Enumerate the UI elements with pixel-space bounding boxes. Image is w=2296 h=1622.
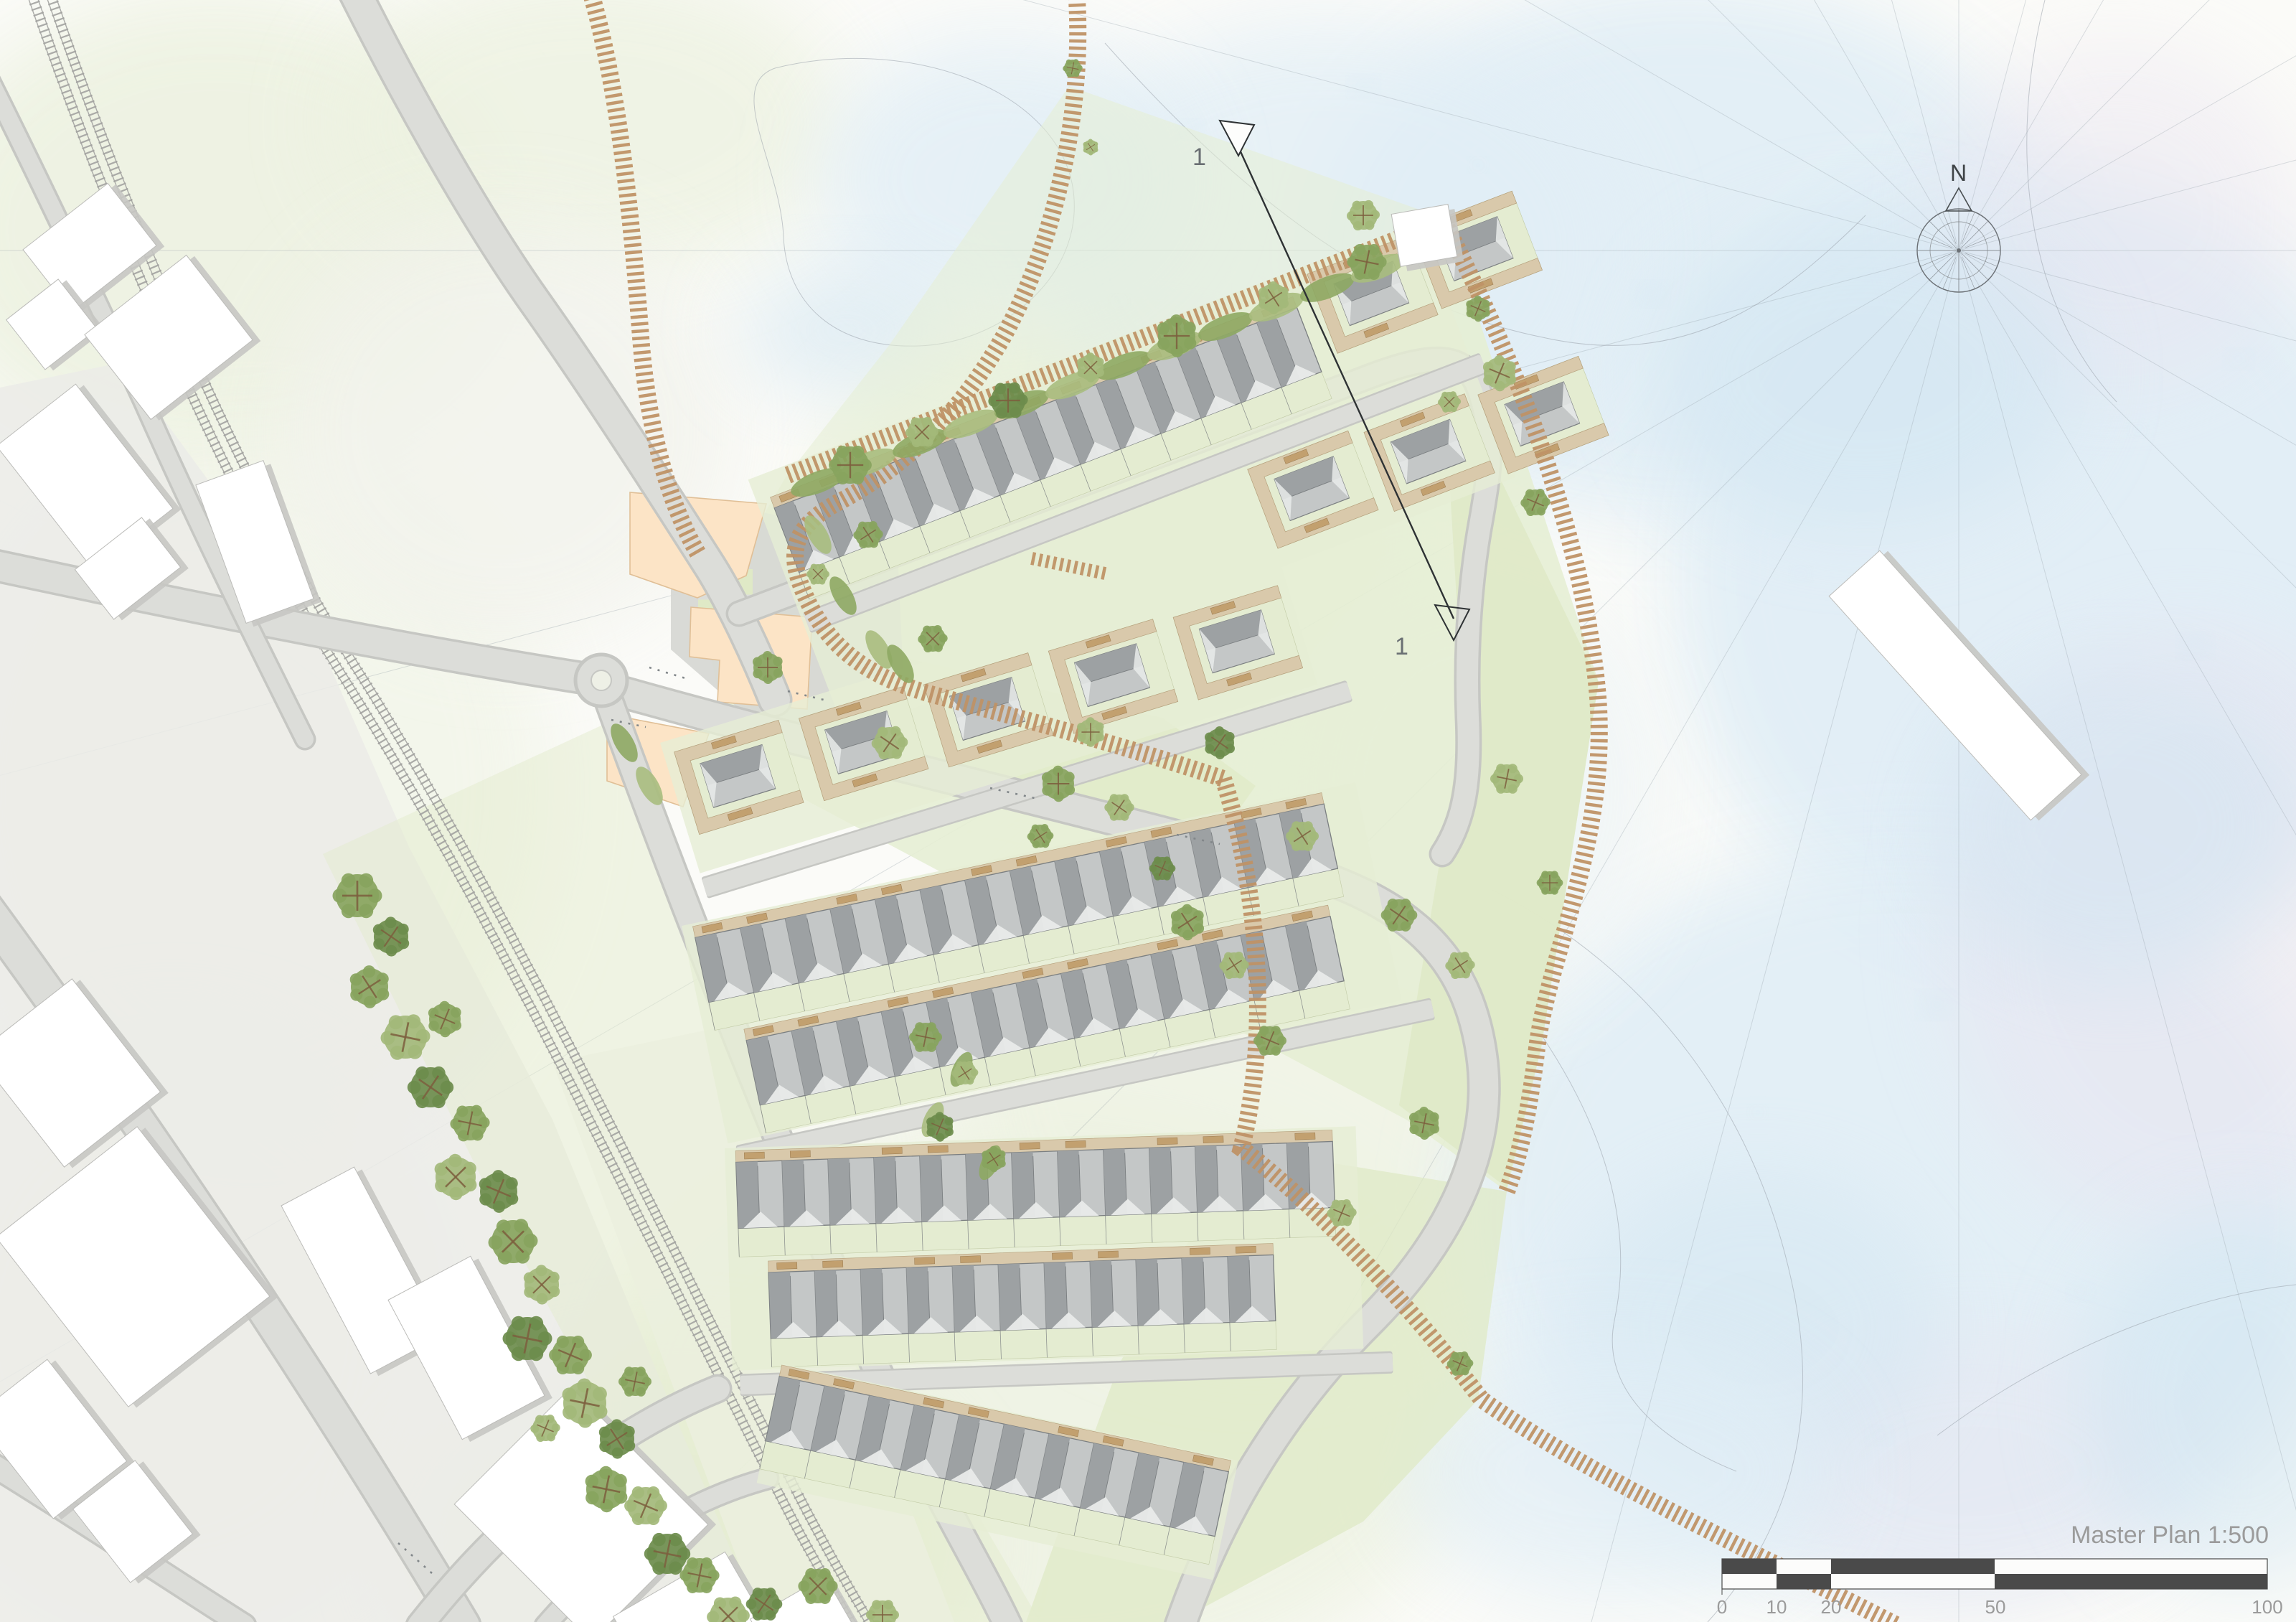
crown-lobe	[1409, 1125, 1418, 1134]
speckle	[1472, 161, 1485, 170]
crown-lobe	[746, 1599, 757, 1610]
crown-lobe	[1462, 970, 1470, 978]
crown-lobe	[891, 749, 902, 759]
crown-lobe	[869, 521, 878, 530]
crown-lobe	[599, 1427, 611, 1438]
crown-lobe	[772, 1599, 783, 1610]
crown-lobe	[1104, 803, 1113, 812]
crown-lobe	[1027, 833, 1035, 840]
crown-lobe	[498, 1250, 512, 1265]
crown-lobe	[552, 1423, 560, 1432]
crown-lobe	[1496, 784, 1505, 794]
speckle	[1639, 286, 1662, 302]
crown-lobe	[1096, 368, 1104, 377]
lower-housing-band	[725, 1125, 1393, 1397]
crown-lobe	[1542, 497, 1551, 506]
crown-lobe	[1496, 764, 1505, 773]
scale-segment	[1722, 1559, 1777, 1574]
crown-lobe	[1364, 200, 1373, 210]
crown-lobe	[798, 1580, 809, 1592]
crown-lobe	[687, 1582, 698, 1593]
bench	[1203, 1136, 1223, 1143]
crown-lobe	[644, 1547, 657, 1560]
scale-segment	[1777, 1574, 1831, 1589]
section-end-label: 1	[1395, 633, 1408, 660]
crown-lobe	[1096, 722, 1104, 731]
crown-lobe	[456, 1106, 468, 1117]
crown-lobe	[1467, 960, 1475, 969]
crown-lobe	[408, 1045, 422, 1059]
crown-lobe	[1442, 406, 1449, 413]
crown-lobe	[1259, 1026, 1269, 1035]
crown-lobe	[585, 1475, 598, 1488]
crown-lobe	[636, 1366, 646, 1376]
crown-lobe	[823, 571, 829, 577]
bench	[1020, 1143, 1040, 1150]
crown-lobe	[572, 1362, 584, 1374]
crown-lobe	[386, 945, 397, 957]
crown-lobe	[918, 635, 926, 644]
crown-lobe	[1182, 904, 1192, 915]
crown-lobe	[1032, 825, 1040, 833]
crown-lobe	[1467, 310, 1474, 318]
bench	[1236, 1246, 1256, 1253]
crown-lobe	[1042, 785, 1053, 796]
crown-lobe	[529, 1316, 543, 1331]
crown-lobe	[945, 1117, 954, 1125]
crown-lobe	[1088, 151, 1093, 156]
crown-lobe	[506, 1177, 518, 1189]
crown-lobe	[1365, 220, 1374, 230]
crown-lobe	[359, 873, 373, 888]
crown-lobe	[1452, 1368, 1460, 1376]
section-start-label: 1	[1192, 144, 1206, 171]
crown-lobe	[1096, 733, 1104, 741]
scale-segment	[1995, 1559, 2267, 1574]
crown-lobe	[377, 972, 389, 985]
crown-lobe	[1083, 142, 1088, 147]
crown-lobe	[1163, 873, 1171, 881]
crown-lobe	[773, 657, 782, 666]
crown-lobe	[464, 1178, 476, 1191]
crown-lobe	[909, 1032, 918, 1041]
crown-lobe	[729, 1596, 741, 1608]
crown-lobe	[435, 1163, 448, 1176]
crown-lobe	[957, 1077, 965, 1085]
crown-lobe	[870, 539, 878, 548]
crown-lobe	[852, 446, 864, 458]
crown-lobe	[1451, 970, 1459, 979]
crown-lobe	[1046, 832, 1054, 840]
crown-lobe	[1452, 1352, 1459, 1360]
speckle	[1794, 569, 1808, 579]
crown-lobe	[1171, 924, 1182, 934]
crown-lobe	[1368, 268, 1380, 280]
crown-lobe	[1551, 887, 1558, 895]
crown-lobe	[996, 408, 1007, 419]
crown-lobe	[342, 904, 356, 918]
bench	[777, 1262, 797, 1270]
crown-lobe	[1429, 1112, 1439, 1122]
crown-lobe	[599, 1466, 612, 1479]
crown-lobe	[624, 1387, 634, 1397]
crown-lobe	[599, 1440, 611, 1452]
crown-lobe	[927, 1043, 936, 1052]
crown-lobe	[1447, 1360, 1455, 1368]
crown-lobe	[524, 1272, 535, 1284]
crown-lobe	[350, 973, 362, 985]
crown-lobe	[859, 540, 867, 548]
crown-lobe	[1466, 1359, 1474, 1367]
crown-lobe	[1171, 911, 1182, 922]
crown-lobe	[1182, 930, 1193, 941]
crown-lobe	[1536, 489, 1545, 497]
crown-lobe	[432, 1067, 445, 1079]
speckle	[1871, 1429, 1888, 1441]
crown-lobe	[1157, 338, 1170, 350]
scale-tick-0: 0	[1717, 1596, 1727, 1618]
crown-lobe	[1110, 794, 1119, 802]
crown-lobe	[450, 1118, 461, 1130]
crown-lobe	[805, 1593, 817, 1604]
crown-lobe	[1327, 1209, 1335, 1218]
crown-lobe	[428, 1021, 439, 1031]
building-footprint	[1391, 205, 1457, 267]
crown-lobe	[416, 1029, 430, 1044]
crown-lobe	[872, 1600, 881, 1609]
crown-lobe	[385, 917, 397, 928]
bench	[882, 1147, 902, 1154]
crown-lobe	[546, 1415, 555, 1423]
crown-lobe	[1258, 299, 1268, 309]
bench	[1052, 1252, 1072, 1260]
crown-lobe	[753, 1610, 763, 1621]
bench	[1098, 1251, 1118, 1258]
crown-lobe	[1009, 383, 1020, 394]
crown-lobe	[1537, 507, 1545, 515]
crown-lobe	[933, 625, 942, 634]
crown-lobe	[1520, 499, 1529, 507]
scale-segment	[1777, 1559, 1831, 1574]
scale-tick-20: 20	[1821, 1596, 1842, 1618]
crown-lobe	[1225, 970, 1233, 979]
crown-lobe	[929, 427, 938, 436]
crown-lobe	[529, 1346, 543, 1361]
crown-lobe	[1064, 772, 1075, 782]
crown-lobe	[652, 1533, 665, 1546]
crown-lobe	[679, 1570, 691, 1581]
crown-lobe	[1309, 831, 1319, 840]
crown-lobe	[1271, 1046, 1281, 1056]
crown-lobe	[875, 530, 883, 538]
crown-lobe	[479, 1194, 491, 1206]
speckle	[2132, 426, 2145, 436]
crown-lobe	[1420, 1130, 1429, 1140]
crown-lobe	[1086, 352, 1095, 361]
crown-lobe	[1445, 962, 1454, 970]
context-building	[1391, 203, 1464, 272]
crown-lobe	[557, 1336, 569, 1348]
crown-lobe	[1541, 887, 1549, 895]
crown-lobe	[1342, 1199, 1351, 1208]
crown-lobe	[1368, 244, 1380, 256]
crown-lobe	[753, 657, 762, 667]
crown-lobe	[363, 965, 375, 978]
crown-lobe	[1065, 784, 1076, 795]
crown-lobe	[536, 1433, 545, 1442]
crown-lobe	[342, 873, 356, 888]
crown-lobe	[397, 938, 409, 950]
crown-lobe	[998, 1160, 1006, 1168]
crown-lobe	[472, 1130, 484, 1141]
crown-lobe	[530, 1425, 539, 1433]
crown-lobe	[837, 446, 849, 458]
crown-lobe	[1450, 952, 1459, 961]
crown-lobe	[1343, 1217, 1352, 1226]
crown-lobe	[397, 924, 409, 935]
bench	[1190, 1247, 1210, 1255]
crown-lobe	[1236, 970, 1244, 978]
crown-lobe	[585, 1491, 598, 1504]
crown-lobe	[766, 1610, 776, 1621]
crown-lobe	[1063, 66, 1068, 72]
crown-lobe	[1430, 1124, 1439, 1133]
crown-lobe	[1354, 268, 1365, 280]
bench	[823, 1260, 843, 1267]
crown-lobe	[837, 472, 849, 484]
crown-lobe	[956, 1061, 964, 1069]
crown-lobe	[811, 578, 817, 584]
crown-lobe	[536, 1265, 547, 1276]
crown-lobe	[1157, 322, 1170, 334]
crown-lobe	[1438, 399, 1444, 405]
crown-lobe	[853, 531, 862, 540]
crown-lobe	[852, 472, 864, 484]
crown-lobe	[923, 417, 932, 426]
crown-lobe	[1154, 856, 1162, 864]
crown-lobe	[1525, 489, 1534, 498]
bench	[1295, 1133, 1315, 1140]
crown-lobe	[432, 1095, 445, 1108]
speckle	[2229, 352, 2248, 366]
crown-lobe	[524, 1234, 538, 1248]
crown-lobe	[612, 1448, 624, 1459]
crown-lobe	[479, 1117, 490, 1128]
crown-lobe	[738, 1609, 750, 1621]
crown-lobe	[441, 1081, 453, 1094]
crown-lobe	[415, 1095, 428, 1108]
crown-lobe	[350, 989, 362, 1001]
bench	[960, 1256, 980, 1263]
crown-lobe	[578, 1379, 592, 1393]
crown-lobe	[915, 1022, 924, 1031]
scale-tick-50: 50	[1985, 1596, 2006, 1618]
crown-lobe	[927, 1022, 936, 1031]
crown-lobe	[939, 634, 948, 642]
scale-tick-100: 100	[2252, 1596, 2282, 1618]
crown-lobe	[1279, 287, 1288, 296]
crown-lobe	[766, 1588, 776, 1598]
crown-lobe	[1215, 726, 1224, 736]
speckle	[2184, 637, 2207, 654]
crown-lobe	[389, 1015, 403, 1029]
crown-lobe	[1347, 256, 1358, 268]
crown-lobe	[1219, 962, 1228, 970]
crown-lobe	[982, 1150, 989, 1158]
crown-lobe	[1286, 831, 1295, 840]
crown-lobe	[1514, 774, 1523, 783]
crown-lobe	[1258, 288, 1268, 297]
crown-lobe	[503, 1331, 517, 1346]
crown-lobe	[563, 1387, 577, 1402]
crown-lobe	[1205, 744, 1214, 754]
crown-lobe	[806, 571, 813, 577]
crown-lobe	[982, 1161, 990, 1168]
crown-lobe	[1086, 374, 1095, 383]
crown-lobe	[377, 988, 389, 1000]
crown-lobe	[819, 563, 825, 570]
crown-lobe	[611, 1419, 623, 1430]
crown-lobe	[1194, 923, 1205, 934]
crown-lobe	[1077, 733, 1086, 742]
crown-lobe	[1225, 744, 1235, 753]
crown-lobe	[1462, 1368, 1469, 1376]
crown-lobe	[878, 727, 888, 738]
crown-lobe	[1215, 750, 1225, 759]
crown-lobe	[373, 924, 385, 936]
crown-lobe	[614, 1491, 627, 1504]
crown-lobe	[1454, 398, 1461, 405]
crown-lobe	[1235, 952, 1243, 960]
crown-lobe	[1241, 960, 1249, 969]
crown-lobe	[1066, 60, 1072, 65]
crown-lobe	[1541, 871, 1549, 878]
crown-lobe	[1354, 244, 1365, 256]
crown-lobe	[912, 438, 921, 447]
crown-lobe	[1225, 732, 1234, 741]
crown-lobe	[1077, 358, 1086, 367]
crown-lobe	[1083, 148, 1088, 153]
crown-lobe	[408, 1081, 420, 1094]
crown-lobe	[1505, 361, 1516, 372]
crown-lobe	[1077, 723, 1086, 731]
crown-lobe	[952, 1069, 960, 1077]
crown-lobe	[1010, 407, 1022, 418]
crown-lobe	[642, 1377, 651, 1386]
crown-lobe	[1042, 840, 1050, 848]
scale-segment	[1831, 1574, 1995, 1589]
crown-lobe	[381, 1031, 395, 1045]
crown-lobe	[613, 1474, 626, 1487]
crown-lobe	[1041, 824, 1049, 832]
crown-lobe	[1120, 794, 1129, 802]
crown-lobe	[359, 904, 373, 918]
crown-lobe	[448, 1154, 461, 1167]
crown-lobe	[578, 1414, 593, 1428]
crown-lobe	[994, 383, 1006, 395]
scale-segment	[1831, 1559, 1995, 1574]
crown-lobe	[1352, 201, 1362, 210]
crown-lobe	[687, 1557, 698, 1569]
crown-lobe	[1508, 764, 1518, 773]
crown-lobe	[618, 1377, 628, 1386]
crown-lobe	[364, 996, 376, 1008]
crown-lobe	[1461, 1351, 1469, 1359]
crown-lobe	[1205, 733, 1214, 742]
crown-lobe	[600, 1499, 613, 1512]
crown-lobe	[708, 1570, 720, 1581]
wash-blob	[1650, 215, 2081, 531]
crown-lobe	[701, 1582, 712, 1593]
crown-lobe	[512, 1346, 526, 1361]
crown-lobe	[512, 1316, 526, 1331]
crown-lobe	[1332, 1218, 1341, 1227]
crown-lobe	[624, 1426, 635, 1438]
crown-lobe	[1332, 1200, 1340, 1209]
crown-lobe	[652, 1562, 665, 1575]
crown-lobe	[593, 1387, 607, 1401]
crown-lobe	[701, 1557, 712, 1569]
crown-lobe	[1353, 221, 1363, 230]
crown-lobe	[1375, 256, 1387, 268]
crown-lobe	[1551, 871, 1558, 878]
crown-lobe	[1193, 910, 1204, 921]
roundabout-island	[591, 670, 611, 690]
crown-lobe	[373, 938, 385, 950]
crown-lobe	[1032, 840, 1040, 848]
crown-lobe	[624, 1366, 634, 1376]
speckle	[1557, 454, 1571, 464]
crown-lobe	[966, 1077, 974, 1085]
crown-lobe	[858, 522, 867, 530]
speckle	[2072, 1285, 2089, 1298]
crown-lobe	[1224, 952, 1233, 961]
bench	[1065, 1140, 1086, 1148]
crown-lobe	[547, 1433, 555, 1441]
crown-lobe	[989, 1146, 997, 1154]
crown-lobe	[563, 1405, 577, 1420]
crown-lobe	[990, 1165, 998, 1173]
crown-lobe	[1508, 784, 1518, 794]
crown-lobe	[1291, 821, 1301, 830]
crown-lobe	[1184, 337, 1196, 350]
crown-lobe	[1120, 812, 1129, 821]
crown-lobe	[632, 1486, 644, 1499]
crown-lobe	[1093, 148, 1098, 153]
crown-lobe	[449, 1187, 462, 1200]
crown-lobe	[669, 1533, 682, 1546]
crown-lobe	[933, 1032, 942, 1041]
crown-lobe	[535, 1415, 544, 1424]
crown-lobe	[753, 1588, 763, 1598]
crown-lobe	[1381, 910, 1392, 921]
crown-lobe	[1401, 899, 1411, 909]
crown-lobe	[677, 1547, 690, 1560]
crown-lobe	[489, 1235, 503, 1250]
crown-lobe	[1461, 952, 1469, 960]
crown-lobe	[415, 1067, 428, 1079]
crown-lobe	[1482, 300, 1490, 308]
crown-lobe	[1450, 391, 1457, 398]
bench	[914, 1257, 934, 1265]
crown-lobe	[548, 1286, 560, 1298]
crown-lobe	[514, 1219, 528, 1233]
crown-lobe	[1093, 141, 1098, 146]
crown-lobe	[1279, 299, 1289, 308]
crown-lobe	[1291, 842, 1301, 851]
scale-tick-10: 10	[1766, 1596, 1787, 1618]
crown-lobe	[1388, 921, 1398, 932]
